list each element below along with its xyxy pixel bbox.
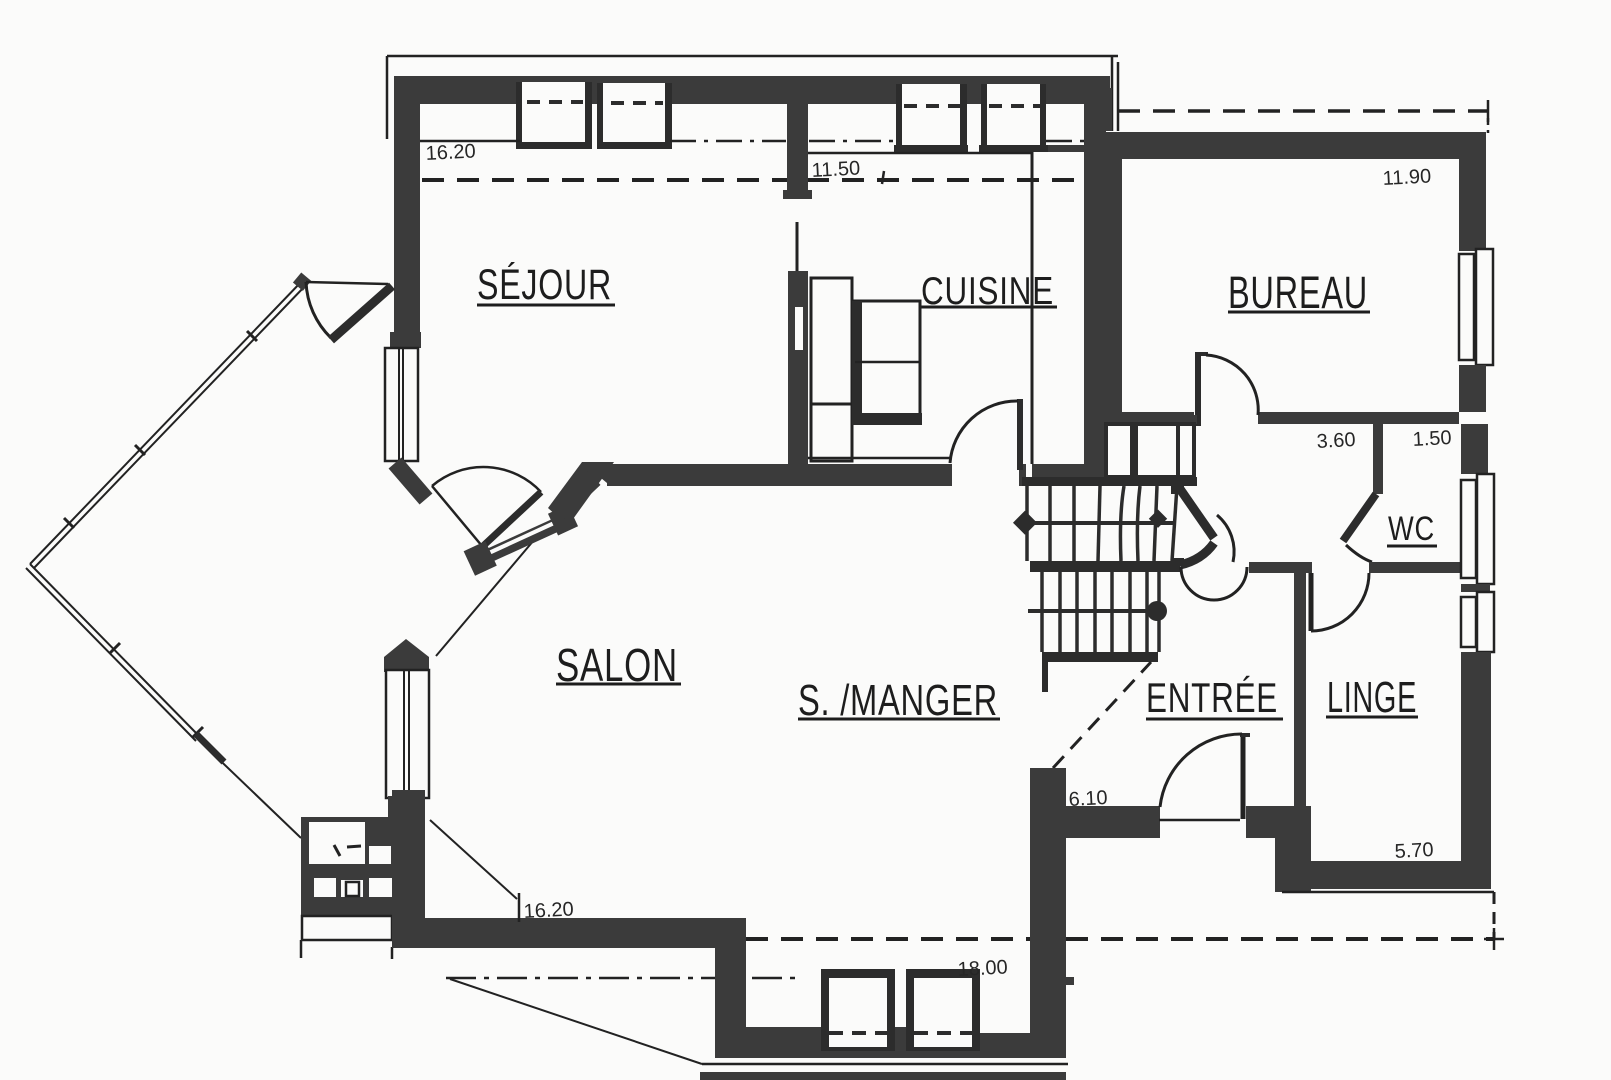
svg-text:WC: WC [1388, 510, 1435, 548]
svg-text:SÉJOUR: SÉJOUR [477, 261, 612, 309]
svg-text:ENTRÉE: ENTRÉE [1146, 674, 1278, 721]
svg-text:BUREAU: BUREAU [1228, 267, 1368, 318]
svg-text:16.20: 16.20 [523, 898, 574, 923]
svg-text:11.50: 11.50 [811, 157, 861, 182]
svg-text:16.20: 16.20 [425, 140, 476, 165]
svg-text:3.60: 3.60 [1316, 429, 1356, 453]
svg-text:18.00: 18.00 [957, 956, 1008, 981]
svg-text:1.50: 1.50 [1412, 427, 1452, 451]
svg-text:5.70: 5.70 [1394, 839, 1434, 863]
svg-text:11.90: 11.90 [1382, 165, 1432, 190]
svg-text:6.10: 6.10 [1068, 787, 1108, 811]
svg-text:LINGE: LINGE [1327, 673, 1417, 722]
